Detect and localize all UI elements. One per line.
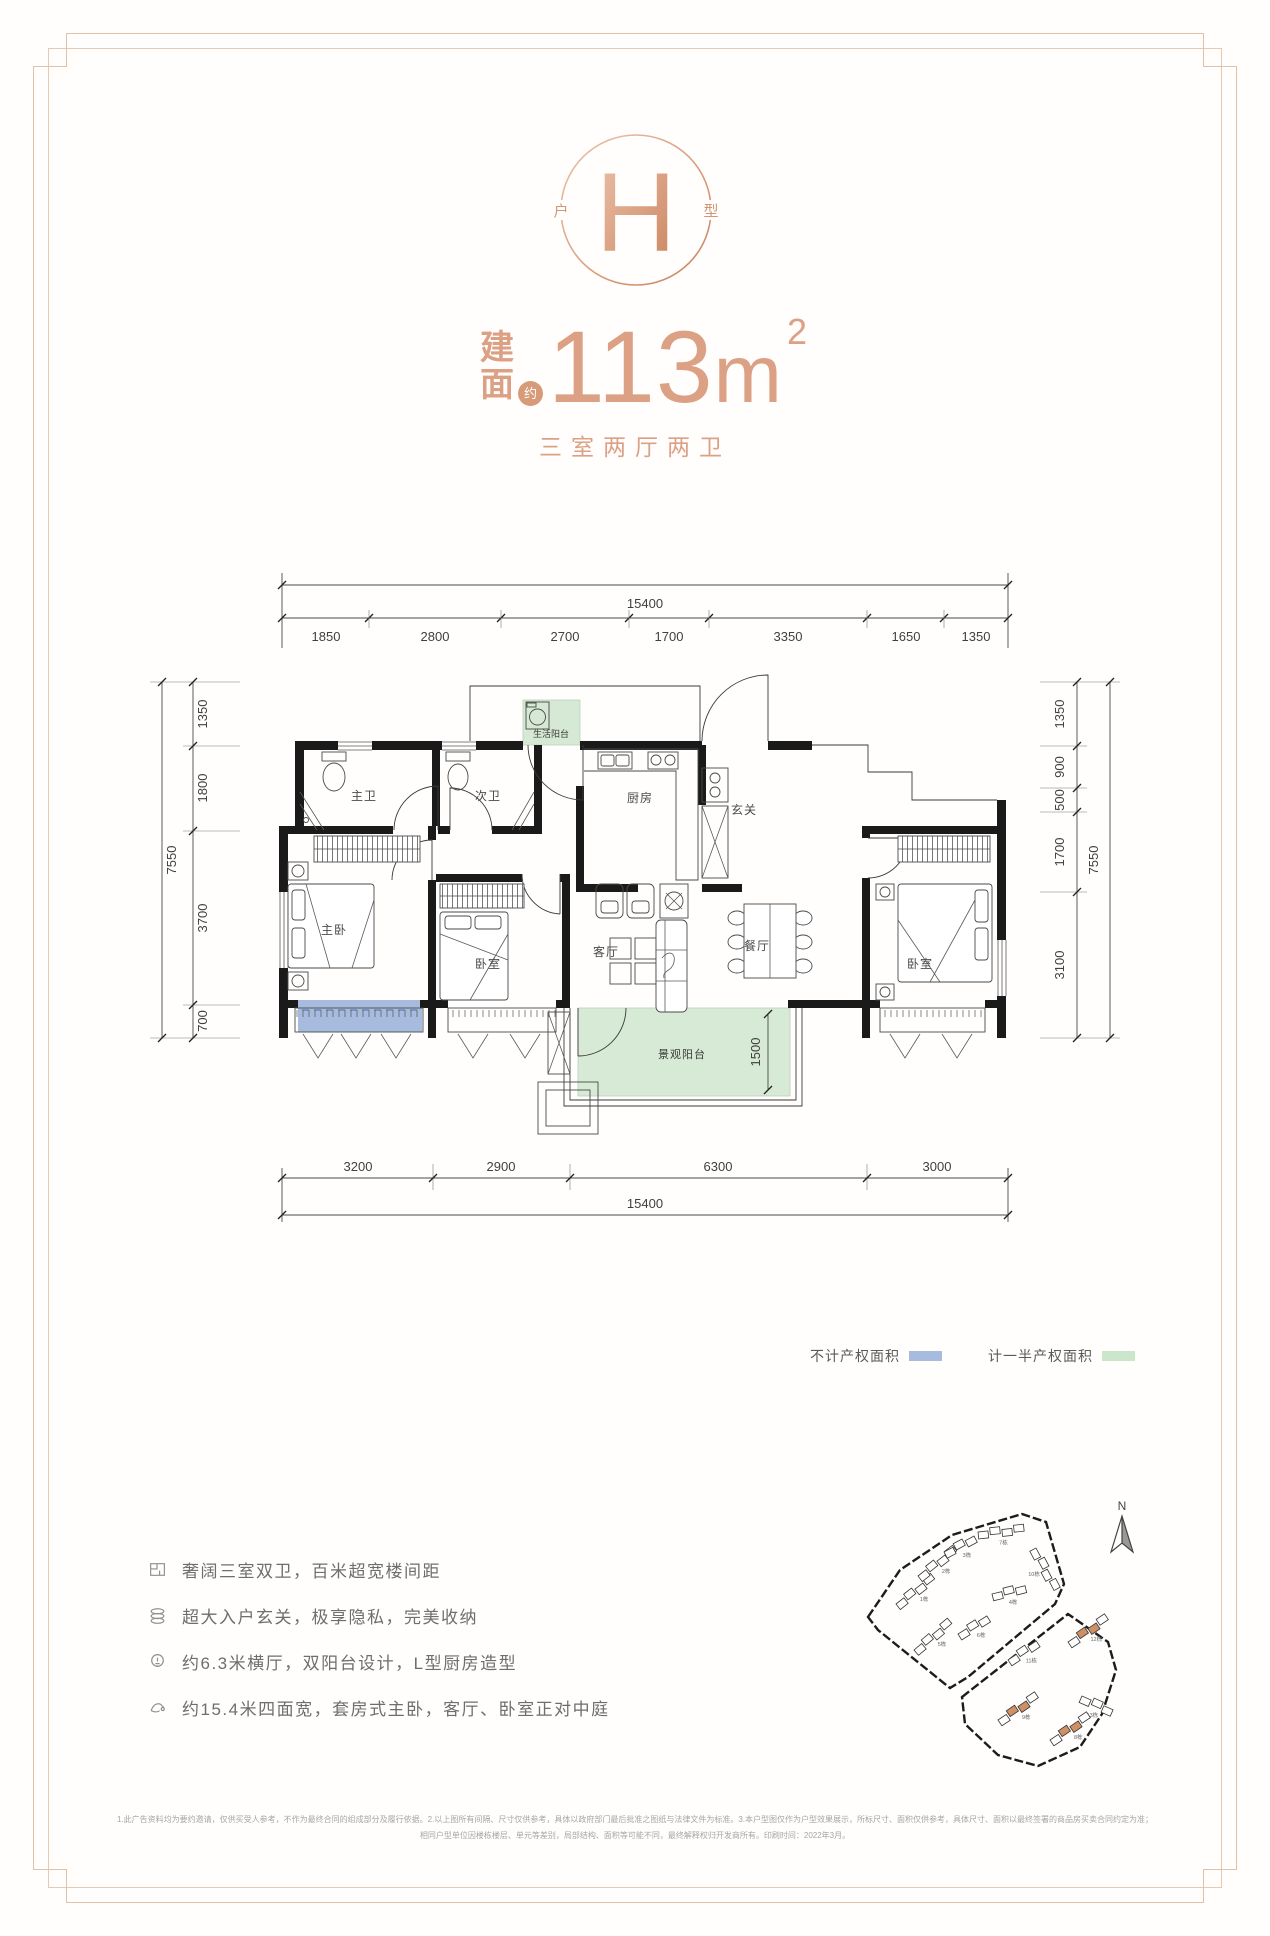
room-label-foyer: 玄关 [731,802,757,817]
north-compass: N [1111,1499,1133,1552]
feature-text: 奢阔三室双卫，百米超宽楼间距 [182,1557,441,1582]
feature-text: 约15.4米四面宽，套房式主卧，客厅、卧室正对中庭 [182,1695,610,1720]
room-label-second-bath: 次卫 [475,789,501,803]
dim-left-0: 1350 [195,700,210,729]
dim-top-1: 2800 [421,629,450,644]
room-label-service-balcony: 生活阳台 [533,728,569,739]
dim-bottom-0: 3200 [344,1159,373,1174]
dim-left-total: 7550 [164,846,179,875]
flyer-page: H 户 型 建 面 约 113m2 三室两厅两卫 [0,0,1270,1936]
dim-right-1: 900 [1052,756,1067,778]
feature-text: 超大入户玄关，极享隐私，完美收纳 [182,1603,478,1628]
dim-right-2: 500 [1052,789,1067,811]
dim-right-0: 1350 [1052,700,1067,729]
feature-text: 约6.3米横厅，双阳台设计，L型厨房造型 [182,1649,517,1674]
windows [280,742,1006,996]
room-label-kitchen: 厨房 [627,790,653,805]
feature-item: 奢阔三室双卫，百米超宽楼间距 [148,1546,610,1592]
site-building-label: 2栋 [942,1567,951,1575]
plan-icon [148,1560,167,1579]
disclaimer-line2: 相同户型单位因楼栋楼层、单元等差别，局部结构、面积等可能不同，最终解释权归开发商… [0,1830,1270,1841]
legend-no-property-swatch [909,1351,942,1361]
site-building-label: 11栋 [1026,1656,1038,1664]
legend-half-property-swatch [1102,1351,1135,1361]
site-building-cluster: 6栋 [956,1613,997,1650]
dims-right: 1350 900 500 1700 3100 7550 [1040,678,1120,1042]
site-building-cluster: 9栋 [996,1692,1047,1736]
room-label-living: 客厅 [593,944,619,959]
dim-balcony-depth: 1500 [748,1038,763,1067]
area-legend: 不计产权面积 计一半产权面积 [810,1346,1135,1366]
dim-top-4: 3350 [774,629,803,644]
room-label-master-bath: 主卫 [351,789,377,803]
room-label-bedroom2: 卧室 [475,956,501,971]
dim-top-total: 15400 [627,596,663,611]
feature-item: 约15.4米四面宽，套房式主卧，客厅、卧室正对中庭 [148,1684,610,1730]
sitemap-buildings: 1栋2栋3栋7栋10栋4栋6栋5栋11栋12栋13栋9栋8栋 [894,1524,1117,1756]
site-building-label: 1栋 [920,1595,929,1603]
hand-icon [148,1698,167,1717]
bedroom2-furniture [440,884,524,1000]
dim-bottom-3: 3000 [923,1159,952,1174]
dim-top-3: 1700 [655,629,684,644]
bulb-icon [148,1652,167,1671]
dim-top-5: 1650 [892,629,921,644]
legend-half-property: 计一半产权面积 [988,1346,1135,1366]
master-bedroom-furniture [288,836,420,990]
disclaimer-line1: 1.此广告资料均为要约邀请，仅供买受人参考，不作为最终合同的组成部分及履行依据。… [0,1814,1270,1825]
dim-bottom-total: 15400 [627,1196,663,1211]
dim-bottom-1: 2900 [487,1159,516,1174]
room-label-bedroom3: 卧室 [907,956,933,971]
site-building-cluster: 1栋 [894,1573,944,1619]
legend-half-property-label: 计一半产权面积 [988,1346,1093,1366]
dim-right-total: 7550 [1086,846,1101,875]
north-label: N [1118,1499,1127,1513]
master-bath-fixtures [300,752,346,830]
feature-item: 约6.3米横厅，双阳台设计，L型厨房造型 [148,1638,610,1684]
dims-bottom: 3200 2900 6300 3000 15400 [278,1159,1012,1222]
kitchen-fixtures [584,749,698,880]
site-building-label: 12栋 [1090,1635,1102,1643]
dim-right-3: 1700 [1052,838,1067,867]
site-building-label: 8栋 [1074,1733,1083,1741]
dim-top-2: 2700 [551,629,580,644]
dims-top: 15400 1850 2800 2700 1700 3350 1650 1350 [278,573,1012,648]
site-building-label: 3栋 [963,1551,972,1559]
dim-left-2: 3700 [195,904,210,933]
site-building-label: 9栋 [1022,1713,1031,1721]
dim-right-4: 3100 [1052,951,1067,980]
dim-top-0: 1850 [312,629,341,644]
room-label-dining: 餐厅 [744,938,770,953]
site-building-label: 7栋 [999,1538,1008,1546]
site-building-label: 10栋 [1028,1570,1040,1578]
feature-list: 奢阔三室双卫，百米超宽楼间距 超大入户玄关，极享隐私，完美收纳 约6.3米横厅，… [148,1546,610,1730]
site-plan: 1栋2栋3栋7栋10栋4栋6栋5栋11栋12栋13栋9栋8栋 N [850,1492,1170,1822]
dim-bottom-2: 6300 [704,1159,733,1174]
site-building-cluster: 7栋 [978,1524,1026,1549]
dim-left-1: 1800 [195,774,210,803]
room-label-view-balcony: 景观阳台 [658,1047,706,1061]
bedroom3-furniture [876,836,992,1000]
site-building-cluster: 11栋 [1006,1639,1047,1677]
room-label-master-bedroom: 主卧 [321,923,347,937]
site-building-cluster: 4栋 [991,1583,1029,1612]
feature-item: 超大入户玄关，极享隐私，完美收纳 [148,1592,610,1638]
dim-top-6: 1350 [962,629,991,644]
site-building-cluster: 5栋 [912,1618,962,1665]
site-building-cluster: 13栋 [1074,1693,1114,1727]
legend-no-property-label: 不计产权面积 [810,1346,900,1366]
disclaimer: 1.此广告资料均为要约邀请，仅供买受人参考，不作为最终合同的组成部分及履行依据。… [0,1814,1270,1841]
site-building-label: 5栋 [938,1640,947,1648]
dims-left: 7550 1350 1800 3700 700 [150,678,240,1042]
site-building-label: 6栋 [977,1631,986,1639]
walls [279,741,1006,1038]
legend-no-property: 不计产权面积 [810,1346,942,1366]
dim-left-3: 700 [195,1010,210,1032]
storage-icon [148,1606,167,1625]
site-building-label: 4栋 [1009,1598,1018,1606]
